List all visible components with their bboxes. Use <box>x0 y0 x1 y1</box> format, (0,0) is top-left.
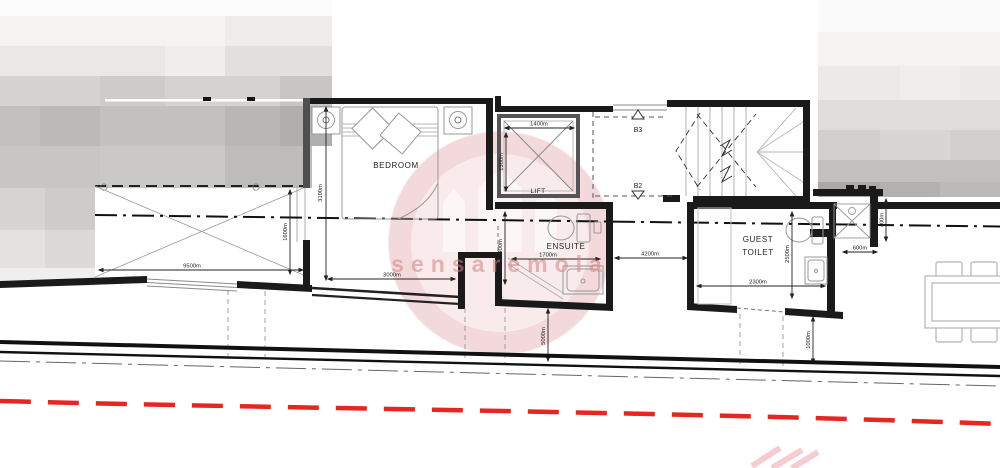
marker-b2: B2 <box>634 183 643 190</box>
staircase <box>676 107 803 196</box>
stair-landing: B3 B2 <box>593 110 672 199</box>
wall-bedroom-right <box>486 98 493 210</box>
wall-guest-right-lower <box>827 235 835 313</box>
wall-stair-right <box>803 100 810 197</box>
blur-region-top-right <box>818 0 1000 197</box>
guest-toilet-label-2: TOILET <box>742 248 773 257</box>
dim-shaft-depth: 400m <box>880 213 886 228</box>
dining-table-set <box>925 262 1000 342</box>
floor-plan-svg: LIFT B3 B2 <box>0 0 1000 468</box>
toilet-icon <box>786 218 812 242</box>
void-terrace <box>95 184 308 277</box>
wall-stair-top <box>667 100 810 107</box>
dim-lift-depth: 1300m <box>499 153 505 171</box>
marker-b2-triangle-icon <box>632 191 644 199</box>
wall-lift-top <box>495 106 613 112</box>
wall-stair-bottom <box>693 196 810 203</box>
watermark-residue <box>752 448 818 468</box>
wall-guest-left <box>687 202 694 310</box>
ensuite-label: ENSUITE <box>547 242 586 251</box>
marker-b3-triangle-icon <box>632 110 644 119</box>
shaft-box <box>834 204 870 238</box>
marker-b3: B3 <box>634 127 643 134</box>
dim-corridor-width: 4200m <box>641 252 659 258</box>
floor-plan-page: LIFT B3 B2 <box>0 0 1000 468</box>
dim-terrace-right: 1000m <box>806 331 812 349</box>
wall-ensuite-top <box>495 202 613 209</box>
wall-bedroom-left <box>303 98 310 188</box>
dim-void-height: 1600m <box>283 223 289 241</box>
wall-bedroom-top <box>303 98 487 104</box>
wall-front-mid <box>237 281 312 292</box>
watermark-text: sensaremola <box>391 251 609 277</box>
dining-table <box>925 276 1000 328</box>
guest-toilet-label-1: GUEST <box>743 235 774 244</box>
bedroom-label: BEDROOM <box>373 161 419 170</box>
wall-corner-post <box>303 240 310 288</box>
red-boundary-line <box>0 401 1000 424</box>
sink <box>805 257 827 284</box>
dim-guest-toilet-depth: 2500m <box>785 245 791 263</box>
wall-a <box>813 189 883 196</box>
dim-void-width: 9500m <box>183 264 201 270</box>
wall-b <box>878 202 1000 209</box>
dim-guest-toilet-width: 2300m <box>749 280 767 286</box>
dim-shaft-width: 600m <box>853 246 868 252</box>
blur-region-top-left <box>0 0 332 286</box>
wall-shaft-right <box>870 196 878 247</box>
dim-terrace-left: 5000m <box>541 327 547 345</box>
dim-bedroom-height: 3100m <box>318 184 324 202</box>
dim-lift-width: 1400m <box>530 122 548 128</box>
pillow <box>380 113 421 154</box>
lift-label: LIFT <box>531 188 546 195</box>
nightstand-right <box>444 107 472 134</box>
